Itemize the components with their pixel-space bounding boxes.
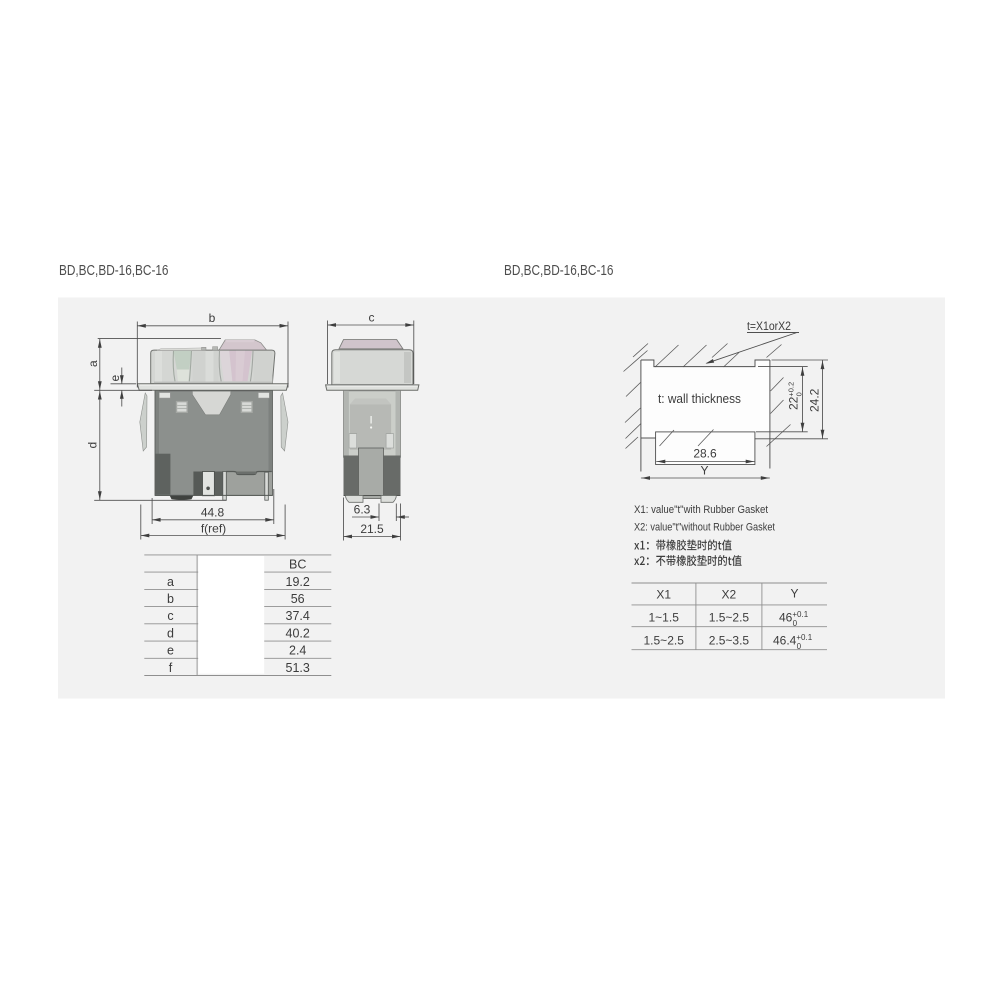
svg-text:2.5~3.5: 2.5~3.5 bbox=[709, 634, 750, 648]
svg-text:40.2: 40.2 bbox=[286, 626, 310, 640]
svg-text:19.2: 19.2 bbox=[286, 575, 310, 589]
svg-text:f(ref): f(ref) bbox=[201, 521, 226, 535]
svg-text:t: wall thickness: t: wall thickness bbox=[658, 391, 741, 406]
svg-text:X2: value"t"without Rubber Gas: X2: value"t"without Rubber Gasket bbox=[634, 522, 775, 534]
svg-text:a: a bbox=[86, 360, 100, 367]
svg-text:1.5~2.5: 1.5~2.5 bbox=[644, 634, 685, 648]
svg-text:X1: X1 bbox=[656, 588, 671, 602]
svg-text:44.8: 44.8 bbox=[201, 505, 225, 519]
svg-text:24.2: 24.2 bbox=[808, 388, 822, 412]
svg-text:X2: X2 bbox=[722, 588, 737, 602]
svg-text:1~1.5: 1~1.5 bbox=[649, 611, 680, 625]
svg-text:6.3: 6.3 bbox=[354, 503, 371, 517]
svg-text:t=X1orX2: t=X1orX2 bbox=[747, 321, 791, 333]
svg-text:e: e bbox=[167, 644, 174, 658]
svg-text:51.3: 51.3 bbox=[286, 661, 310, 675]
svg-text:a: a bbox=[167, 575, 174, 589]
svg-text:Y: Y bbox=[790, 587, 798, 601]
svg-text:c: c bbox=[369, 311, 375, 325]
svg-text:28.6: 28.6 bbox=[693, 447, 717, 461]
svg-text:2.4: 2.4 bbox=[289, 644, 306, 658]
svg-text:f: f bbox=[169, 661, 173, 675]
svg-text:BC: BC bbox=[289, 558, 306, 572]
svg-text:b: b bbox=[167, 592, 174, 606]
svg-text:d: d bbox=[167, 626, 174, 640]
svg-text:Y: Y bbox=[700, 464, 708, 478]
svg-text:BD,BC,BD-16,BC-16: BD,BC,BD-16,BC-16 bbox=[504, 263, 614, 279]
svg-text:b: b bbox=[209, 311, 216, 325]
svg-text:1.5~2.5: 1.5~2.5 bbox=[709, 611, 750, 625]
svg-text:c: c bbox=[167, 609, 173, 623]
svg-text:BD,BC,BD-16,BC-16: BD,BC,BD-16,BC-16 bbox=[59, 263, 169, 279]
svg-text:e: e bbox=[108, 375, 122, 382]
svg-text:21.5: 21.5 bbox=[360, 522, 384, 536]
svg-text:d: d bbox=[86, 442, 100, 449]
svg-text:37.4: 37.4 bbox=[286, 609, 310, 623]
svg-text:56: 56 bbox=[291, 592, 305, 606]
svg-text:X1: value"t"with Rubber Gasket: X1: value"t"with Rubber Gasket bbox=[634, 504, 768, 516]
